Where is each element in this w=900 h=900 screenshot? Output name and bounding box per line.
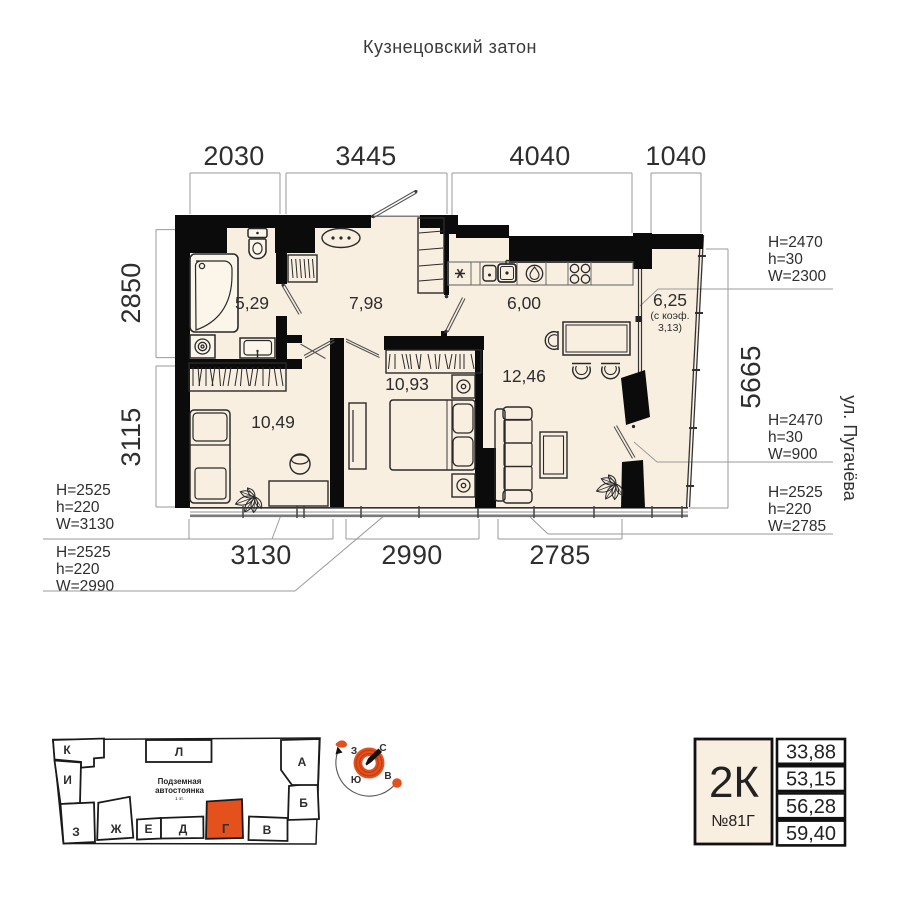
svg-text:h=220: h=220 <box>56 561 100 578</box>
svg-text:W=3130: W=3130 <box>56 516 115 533</box>
svg-text:(с коэф.: (с коэф. <box>650 310 689 322</box>
svg-text:4040: 4040 <box>509 141 570 171</box>
svg-text:2785: 2785 <box>529 540 590 570</box>
svg-text:Б: Б <box>299 796 308 810</box>
svg-text:10,49: 10,49 <box>251 412 295 432</box>
svg-text:5665: 5665 <box>735 345 766 409</box>
svg-text:В: В <box>263 823 272 837</box>
svg-text:3115: 3115 <box>116 407 146 466</box>
svg-text:Ю: Ю <box>351 775 361 786</box>
svg-text:6,25: 6,25 <box>653 290 687 310</box>
svg-text:1040: 1040 <box>645 141 706 171</box>
svg-text:2030: 2030 <box>203 141 264 171</box>
svg-text:h=30: h=30 <box>768 251 803 268</box>
svg-text:5,29: 5,29 <box>235 293 269 313</box>
svg-text:W=2300: W=2300 <box>768 268 827 285</box>
svg-text:2К: 2К <box>709 758 759 807</box>
svg-text:12,46: 12,46 <box>502 366 546 386</box>
svg-text:А: А <box>298 755 307 769</box>
svg-text:h=220: h=220 <box>56 499 100 516</box>
svg-text:В: В <box>384 771 391 782</box>
svg-text:H=2525: H=2525 <box>768 484 823 501</box>
svg-text:10,93: 10,93 <box>385 374 429 394</box>
svg-text:2990: 2990 <box>381 540 442 570</box>
svg-text:h=30: h=30 <box>768 429 803 446</box>
svg-text:Л: Л <box>175 745 183 759</box>
svg-text:W=2990: W=2990 <box>56 578 115 595</box>
svg-text:H=2525: H=2525 <box>56 482 111 499</box>
svg-text:С: С <box>379 743 386 754</box>
svg-text:З: З <box>72 825 80 839</box>
svg-text:Подземная: Подземная <box>158 777 202 786</box>
svg-text:7,98: 7,98 <box>349 293 383 313</box>
svg-text:H=2470: H=2470 <box>768 234 823 251</box>
svg-text:автостоянка: автостоянка <box>155 786 204 795</box>
svg-text:И: И <box>63 773 72 787</box>
svg-text:H=2470: H=2470 <box>768 412 823 429</box>
svg-text:H=2525: H=2525 <box>56 544 111 561</box>
svg-text:3445: 3445 <box>335 141 396 171</box>
svg-text:К: К <box>63 743 71 757</box>
svg-text:№81Г: №81Г <box>711 813 755 830</box>
svg-text:W=2785: W=2785 <box>768 518 826 535</box>
svg-text:53,15: 53,15 <box>786 769 836 791</box>
svg-text:1 эт.: 1 эт. <box>175 796 184 801</box>
svg-text:З: З <box>351 746 357 757</box>
svg-text:3130: 3130 <box>230 540 291 570</box>
svg-text:h=220: h=220 <box>768 501 812 518</box>
svg-text:Е: Е <box>144 822 152 836</box>
svg-text:56,28: 56,28 <box>786 796 836 818</box>
svg-text:Г: Г <box>222 821 230 836</box>
svg-text:3,13): 3,13) <box>658 322 682 334</box>
svg-text:Кузнецовский затон: Кузнецовский затон <box>363 37 537 57</box>
svg-text:Д: Д <box>179 822 188 836</box>
svg-text:W=900: W=900 <box>768 446 818 463</box>
svg-text:2850: 2850 <box>116 262 146 323</box>
svg-text:33,88: 33,88 <box>786 742 836 764</box>
svg-text:6,00: 6,00 <box>507 293 541 313</box>
svg-text:59,40: 59,40 <box>786 823 836 845</box>
svg-text:Ж: Ж <box>110 822 122 836</box>
svg-text:ул. Пугачёва: ул. Пугачёва <box>840 395 860 502</box>
